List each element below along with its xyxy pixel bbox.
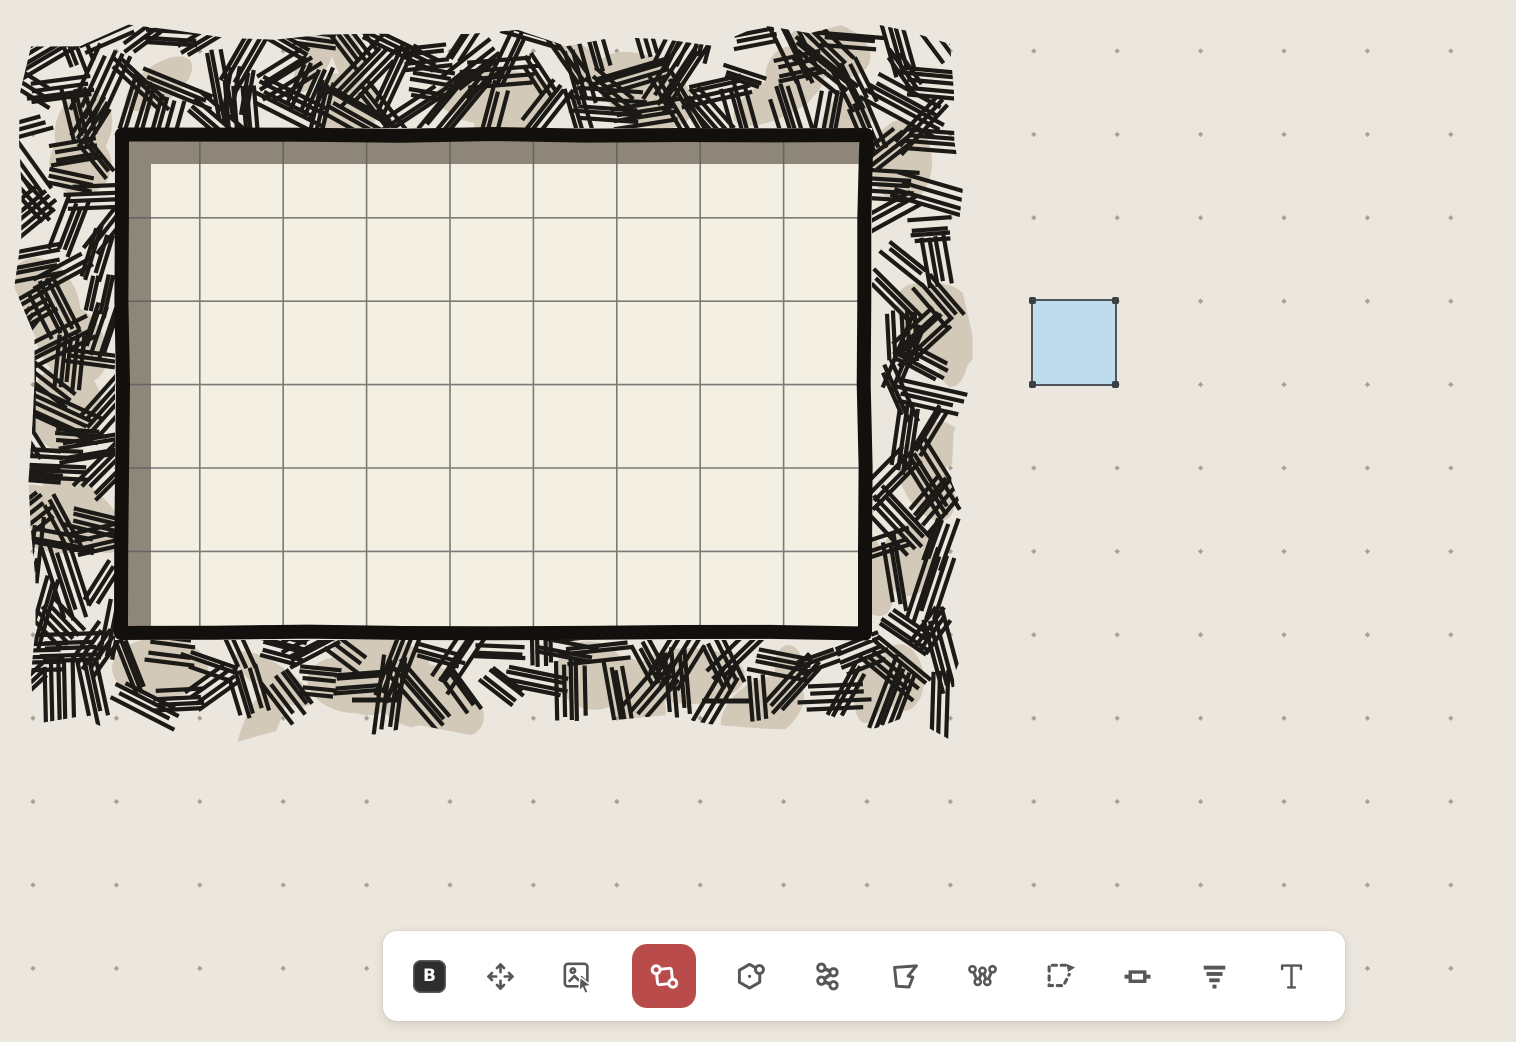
- wall-path-icon: [964, 958, 1001, 995]
- door-tool[interactable]: [1114, 953, 1160, 999]
- select-transform-tool[interactable]: [1037, 953, 1083, 999]
- text-tool[interactable]: [1269, 953, 1315, 999]
- layer-bars-icon: [1196, 958, 1233, 995]
- move-icon: [482, 958, 519, 995]
- zigzag-nodes-icon: [809, 958, 846, 995]
- corner-handle-br: [1112, 381, 1119, 388]
- path-nodes-tool[interactable]: [805, 953, 851, 999]
- freeform-polygon-tool[interactable]: [882, 953, 928, 999]
- shadow-tool[interactable]: [1192, 953, 1238, 999]
- image-cursor-icon: [559, 958, 596, 995]
- logo-button[interactable]: B: [413, 960, 446, 993]
- freeform-polygon-icon: [887, 958, 924, 995]
- rectangle-draw-tool[interactable]: [632, 944, 696, 1008]
- wall-draw-tool[interactable]: [960, 953, 1006, 999]
- dashed-marquee-arrow-icon: [1041, 958, 1078, 995]
- map-scene: [0, 0, 1516, 1042]
- toolbar: B: [383, 931, 1345, 1021]
- corner-handle-tr: [1112, 297, 1119, 304]
- corner-handle-tl: [1029, 297, 1036, 304]
- rect-corners-icon: [647, 959, 682, 994]
- hexagon-node-icon: [732, 958, 769, 995]
- image-select-tool[interactable]: [555, 953, 601, 999]
- text-icon: [1273, 958, 1310, 995]
- logo-letter: B: [423, 968, 436, 985]
- move-tool[interactable]: [477, 953, 523, 999]
- door-icon: [1119, 958, 1156, 995]
- map-canvas[interactable]: B: [0, 0, 1516, 1042]
- rect-tool-preview-square: [1031, 299, 1117, 386]
- polygon-draw-tool[interactable]: [727, 953, 773, 999]
- corner-handle-bl: [1029, 381, 1036, 388]
